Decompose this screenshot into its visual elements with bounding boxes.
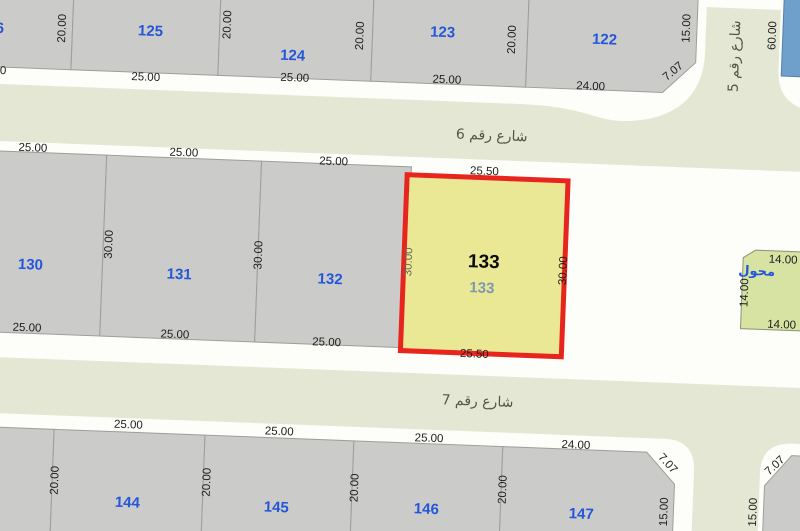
dim-147-side: 15.00: [658, 497, 671, 526]
parcel-132[interactable]: [255, 161, 412, 348]
dim-top-depth-2: 20.00: [354, 21, 367, 50]
dim-mid-depth-1: 30.00: [252, 240, 265, 269]
dim-top-depth-1: 20.00: [221, 10, 234, 39]
cadastral-map: 25.00 25.00 25.00 25.00 24.00 20.00 20.0…: [0, 0, 800, 531]
parcel-number-145: 145: [263, 498, 289, 516]
dim-top-depth-3: 20.00: [506, 25, 519, 54]
dim-top-edge-1: 25.00: [131, 71, 160, 84]
dim-top-edge-4: 24.00: [576, 80, 605, 93]
parcel-number-130: 130: [18, 256, 44, 274]
map-canvas: 25.00 25.00 25.00 25.00 24.00 20.00 20.0…: [0, 0, 800, 531]
dim-top-edge-3: 25.00: [432, 74, 461, 87]
dim-top-edge-2: 25.00: [280, 72, 309, 85]
dim-mid-top-0: 25.00: [18, 142, 47, 155]
dim-133-left: 30.00: [402, 247, 415, 276]
dim-mid-top-1: 25.00: [169, 147, 198, 160]
selected-parcel-alt-number: 133: [469, 279, 495, 297]
parcel-130[interactable]: [0, 149, 107, 336]
dim-transformer-left: 14.00: [738, 278, 751, 307]
dim-mid-bottom-0: 25.00: [12, 322, 41, 335]
parcel-number-146: 146: [414, 500, 440, 518]
blue-parcel[interactable]: [781, 0, 800, 79]
dim-bottom-top-0: 25.00: [114, 419, 143, 432]
parcel-124[interactable]: [218, 0, 376, 81]
parcel-131[interactable]: [100, 155, 262, 342]
parcel-left-partial[interactable]: [0, 424, 54, 531]
parcel-number-132: 132: [317, 270, 343, 288]
parcel-number-125: 125: [138, 22, 164, 40]
selected-parcel-number: 133: [468, 251, 500, 273]
dim-bottom-depth-2: 20.00: [349, 473, 362, 502]
dim-bottom-depth-0: 20.00: [49, 466, 62, 495]
transformer-label: محول: [738, 263, 775, 279]
dim-bottom-top-3: 24.00: [561, 439, 590, 452]
parcel-number-144: 144: [115, 494, 141, 512]
parcel-number-147: 147: [568, 505, 594, 523]
parcel-number-126: 126: [0, 19, 4, 37]
parcel-number-131: 131: [166, 266, 192, 284]
dim-mid-bottom-1: 25.00: [160, 328, 189, 341]
dim-bottom-top-1: 25.00: [265, 425, 294, 438]
dim-right-side: 15.00: [747, 498, 760, 527]
dim-bottom-depth-3: 20.00: [497, 475, 510, 504]
parcel-145[interactable]: [200, 435, 354, 531]
dim-mid-depth-0: 30.00: [103, 230, 116, 259]
street-5-label: شارع رقم 5: [726, 20, 745, 92]
dim-top-depth-0: 20.00: [56, 14, 69, 43]
parcel-144[interactable]: [49, 429, 205, 531]
parcel-number-122: 122: [592, 31, 618, 49]
dim-133-top: 25.50: [470, 165, 499, 178]
dim-122-side: 15.00: [680, 14, 693, 43]
parcel-number-123: 123: [430, 23, 456, 41]
dim-blue-parcel: 60.00: [766, 21, 779, 50]
street-6-label: شارع رقم 6: [456, 127, 528, 146]
dim-133-bottom: 25.50: [460, 348, 489, 361]
dim-133-right: 30.00: [557, 256, 570, 285]
dim-transformer-bottom: 14.00: [767, 319, 796, 332]
dim-bottom-top-2: 25.00: [414, 432, 443, 445]
dim-top-edge-0: 25.00: [0, 64, 6, 77]
street-7-label: شارع رقم 7: [441, 392, 513, 411]
dim-mid-top-2: 25.00: [319, 155, 348, 168]
dim-bottom-depth-1: 20.00: [201, 468, 214, 497]
parcel-number-124: 124: [280, 47, 306, 65]
dim-mid-bottom-2: 25.00: [312, 336, 341, 349]
